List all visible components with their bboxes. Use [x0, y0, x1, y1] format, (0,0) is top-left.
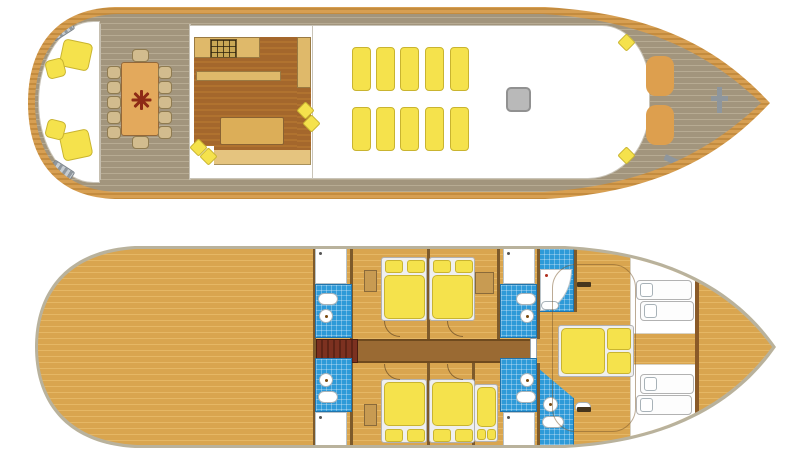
bathroom [500, 358, 537, 448]
dining-chair [107, 96, 121, 109]
bunk-pillow [644, 304, 657, 318]
dining-chair [158, 81, 172, 94]
sink [318, 293, 338, 305]
shower [503, 248, 535, 284]
dining-chair [107, 111, 121, 124]
dining-chair [158, 66, 172, 79]
sun-mat [450, 47, 469, 91]
cabin-wall [537, 363, 540, 448]
anchor-windlass-arm-icon [711, 96, 728, 101]
galley-shelf [196, 71, 281, 81]
bed-pillow [607, 352, 631, 374]
deck-hatch [506, 87, 531, 112]
bow-sunpad [646, 105, 674, 145]
single-bed [474, 384, 498, 442]
bathroom-floor [500, 358, 537, 412]
bed-pillow [477, 429, 486, 440]
crew-bunk-bed [640, 374, 694, 394]
bed-mattress [432, 382, 473, 426]
bed-mattress [384, 382, 425, 426]
bunk-pillow [644, 377, 657, 391]
shower [315, 412, 347, 448]
bathroom-floor [315, 284, 352, 338]
sun-mat [376, 107, 395, 151]
dining-chair [107, 81, 121, 94]
sun-mat [400, 107, 419, 151]
forepeak-bulkhead [695, 260, 699, 435]
cabinet-mark [577, 282, 591, 287]
dining-chair [107, 66, 121, 79]
bed-pillow [407, 429, 425, 442]
bed-pillow [487, 429, 496, 440]
galley-table [220, 117, 284, 145]
dining-table [121, 62, 159, 136]
toilet [520, 309, 534, 323]
bed-pillow [433, 260, 451, 273]
bed-pillow [607, 328, 631, 350]
bed-mattress [384, 275, 425, 319]
crew-bunk-bed [640, 301, 694, 321]
toilet [319, 373, 333, 387]
sun-mat [425, 107, 444, 151]
dining-chair [132, 136, 149, 149]
crew-bunk-bed [636, 395, 692, 415]
toilet [520, 373, 534, 387]
nightstand [475, 272, 494, 294]
nightstand [364, 404, 377, 426]
bed-mattress [561, 328, 605, 374]
sun-mat [450, 107, 469, 151]
master-double-bed [558, 325, 634, 377]
cabin-wall [537, 246, 540, 339]
nightstand [364, 270, 377, 292]
dining-chair [132, 49, 149, 62]
sun-mat [400, 47, 419, 91]
sink [516, 391, 536, 403]
dining-chair [158, 96, 172, 109]
bathroom [315, 248, 352, 338]
sun-mat [376, 47, 395, 91]
bed-pillow [385, 429, 403, 442]
bed-mattress [432, 275, 473, 319]
bunk-pillow [640, 283, 653, 297]
galley-floor-upper [258, 37, 298, 59]
double-bed [381, 257, 427, 321]
toilet [319, 309, 333, 323]
crew-bunk-bed [636, 280, 692, 300]
bed-pillow [433, 429, 451, 442]
bed-pillow [455, 260, 473, 273]
bathroom-floor [315, 358, 352, 412]
galley-side-counter [297, 37, 311, 88]
dining-chair [158, 126, 172, 139]
yacht-deck-plan [0, 0, 800, 450]
sun-mat [352, 107, 371, 151]
bow-sunpad [646, 56, 674, 96]
dining-chair [158, 111, 172, 124]
bathroom [500, 248, 537, 338]
shower [503, 412, 535, 448]
bathroom-floor [500, 284, 537, 338]
sink [516, 293, 536, 305]
bed-mattress [477, 387, 496, 427]
cabinet-mark [577, 407, 591, 412]
bunk-pillow [640, 398, 653, 412]
stove-grid-icon [210, 39, 237, 58]
sink [318, 391, 338, 403]
bed-pillow [385, 260, 403, 273]
shower [315, 248, 347, 284]
double-bed [381, 379, 427, 443]
bed-pillow [455, 429, 473, 442]
double-bed [429, 257, 475, 321]
aft-bulkhead-line [99, 24, 101, 180]
dining-chair [107, 126, 121, 139]
sun-mat [425, 47, 444, 91]
bathroom [315, 358, 352, 448]
cabin-wall [574, 246, 577, 312]
sun-mat [352, 47, 371, 91]
double-bed [429, 379, 475, 443]
bed-pillow [407, 260, 425, 273]
